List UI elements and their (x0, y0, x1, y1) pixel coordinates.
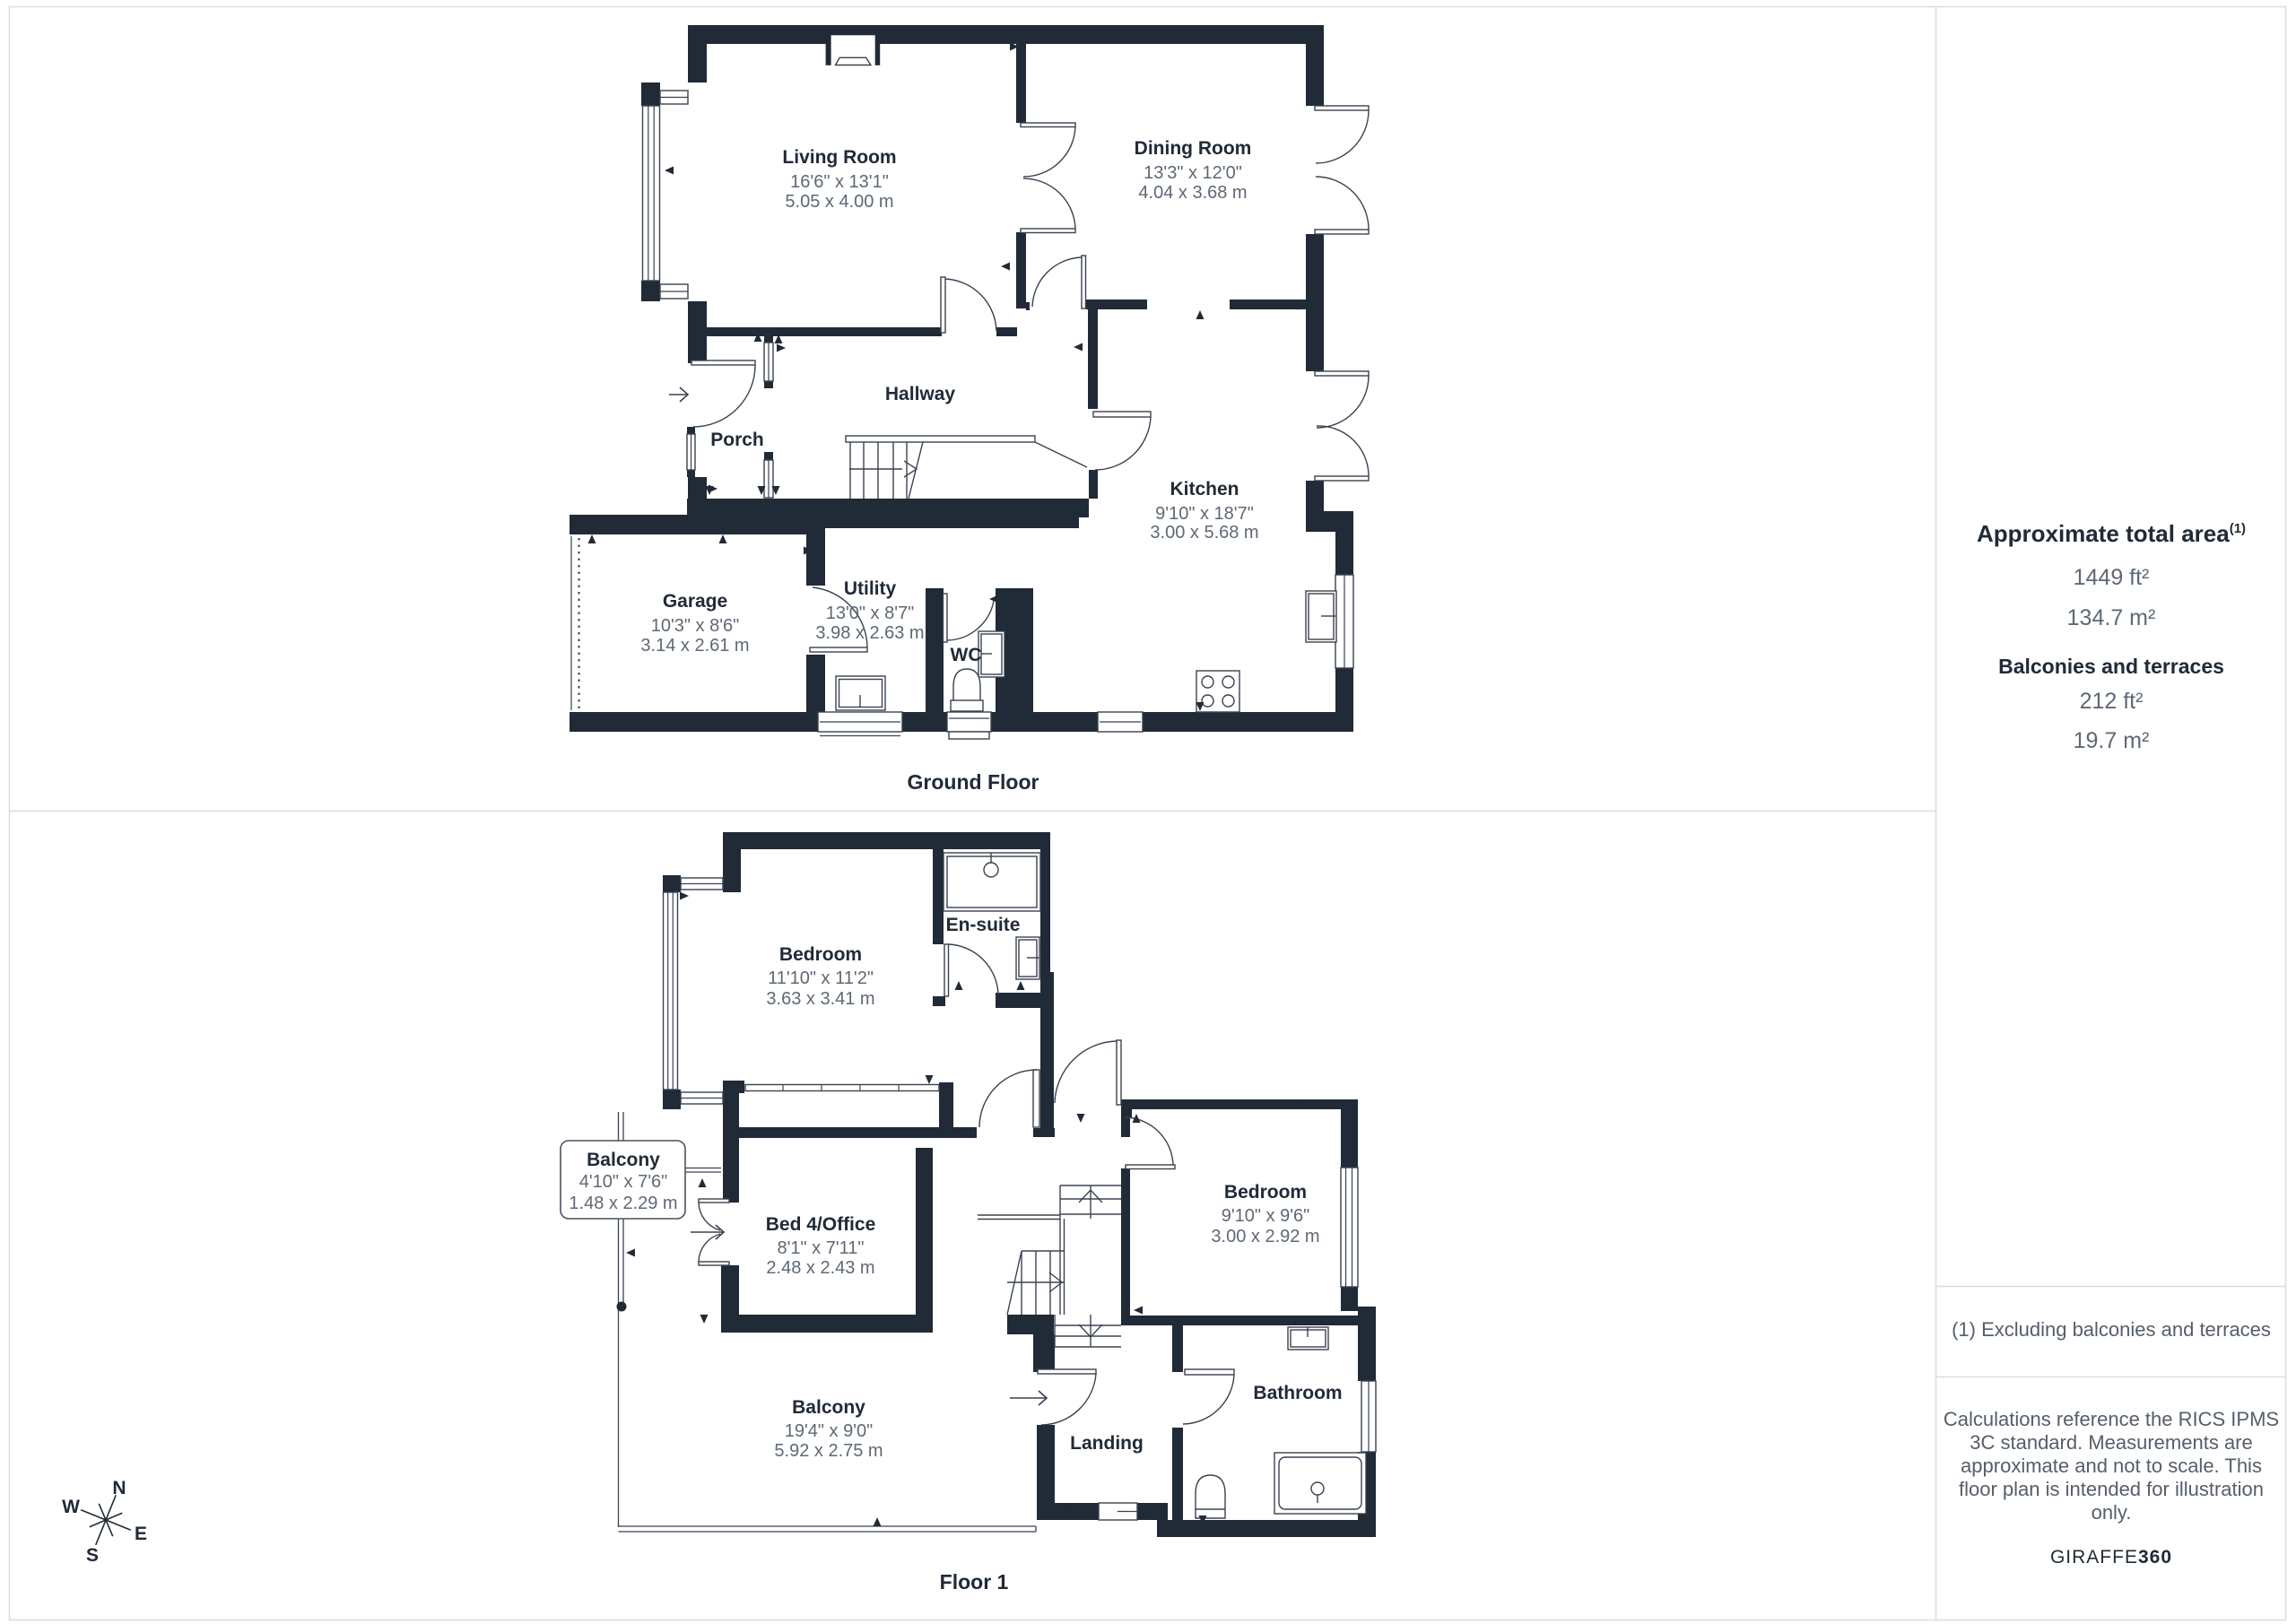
svg-text:4'10" x 7'6": 4'10" x 7'6" (579, 1172, 668, 1192)
svg-text:Ground Floor: Ground Floor (908, 770, 1039, 794)
svg-text:Porch: Porch (710, 430, 764, 450)
svg-text:2.48 x 2.43 m: 2.48 x 2.43 m (766, 1258, 874, 1278)
svg-text:approximate and not to scale.: approximate and not to scale. This (1961, 1455, 2262, 1477)
svg-text:floor plan is intended for ill: floor plan is intended for illustration (1959, 1478, 2264, 1500)
svg-text:3C standard. Measurements are: 3C standard. Measurements are (1970, 1431, 2253, 1454)
svg-text:Calculations reference the RIC: Calculations reference the RICS IPMS (1944, 1408, 2279, 1430)
svg-text:Utility: Utility (844, 578, 897, 599)
svg-text:3.63 x 3.41 m: 3.63 x 3.41 m (766, 989, 874, 1009)
svg-text:19'4" x 9'0": 19'4" x 9'0" (785, 1421, 874, 1441)
svg-text:Dining Room: Dining Room (1135, 138, 1252, 159)
svg-text:3.00 x 5.68 m: 3.00 x 5.68 m (1150, 523, 1258, 543)
svg-text:Bedroom: Bedroom (1224, 1182, 1307, 1203)
svg-text:19.7 m²: 19.7 m² (2074, 728, 2150, 753)
svg-text:Hallway: Hallway (885, 384, 956, 404)
svg-text:Floor 1: Floor 1 (940, 1570, 1009, 1594)
svg-text:Garage: Garage (663, 591, 727, 612)
svg-text:5.92 x 2.75 m: 5.92 x 2.75 m (774, 1441, 883, 1461)
svg-text:212 ft²: 212 ft² (2080, 689, 2144, 714)
svg-text:Balconies and terraces: Balconies and terraces (1998, 655, 2224, 678)
svg-text:S: S (86, 1545, 99, 1566)
svg-text:Approximate total area(1): Approximate total area(1) (1977, 520, 2246, 547)
svg-text:Balcony: Balcony (792, 1397, 865, 1418)
svg-text:134.7 m²: 134.7 m² (2067, 605, 2156, 630)
svg-text:Bed 4/Office: Bed 4/Office (766, 1214, 876, 1235)
svg-text:En-suite: En-suite (946, 915, 1021, 935)
svg-text:13'3" x 12'0": 13'3" x 12'0" (1144, 163, 1242, 183)
svg-text:Kitchen: Kitchen (1170, 479, 1239, 499)
svg-text:W: W (62, 1497, 80, 1517)
svg-text:3.98 x 2.63 m: 3.98 x 2.63 m (815, 623, 924, 643)
svg-text:8'1" x 7'11": 8'1" x 7'11" (777, 1238, 864, 1258)
svg-text:E: E (135, 1524, 147, 1544)
svg-text:WC: WC (951, 645, 982, 665)
svg-text:Landing: Landing (1070, 1433, 1144, 1454)
svg-text:GIRAFFE360: GIRAFFE360 (2050, 1547, 2172, 1568)
svg-text:N: N (112, 1478, 126, 1498)
svg-text:10'3" x 8'6": 10'3" x 8'6" (651, 616, 740, 636)
svg-text:1449 ft²: 1449 ft² (2074, 565, 2150, 590)
svg-text:3.00 x 2.92 m: 3.00 x 2.92 m (1211, 1227, 1319, 1246)
svg-text:Bedroom: Bedroom (779, 944, 862, 965)
svg-text:Living Room: Living Room (782, 147, 896, 168)
svg-text:16'6" x 13'1": 16'6" x 13'1" (790, 172, 889, 192)
svg-text:9'10" x 9'6": 9'10" x 9'6" (1222, 1206, 1310, 1226)
svg-text:9'10" x 18'7": 9'10" x 18'7" (1155, 504, 1254, 524)
svg-text:(1) Excluding balconies and te: (1) Excluding balconies and terraces (1952, 1318, 2271, 1341)
svg-text:11'10" x 11'2": 11'10" x 11'2" (768, 968, 874, 988)
svg-text:3.14 x 2.61 m: 3.14 x 2.61 m (640, 636, 749, 656)
svg-text:1.48 x 2.29 m: 1.48 x 2.29 m (569, 1194, 677, 1213)
svg-text:only.: only. (2092, 1501, 2132, 1524)
svg-text:5.05 x 4.00 m: 5.05 x 4.00 m (785, 192, 893, 212)
svg-text:13'0" x 8'7": 13'0" x 8'7" (826, 604, 915, 623)
svg-text:Bathroom: Bathroom (1253, 1383, 1342, 1403)
svg-text:4.04 x 3.68 m: 4.04 x 3.68 m (1138, 183, 1247, 203)
svg-text:Balcony: Balcony (587, 1150, 660, 1170)
